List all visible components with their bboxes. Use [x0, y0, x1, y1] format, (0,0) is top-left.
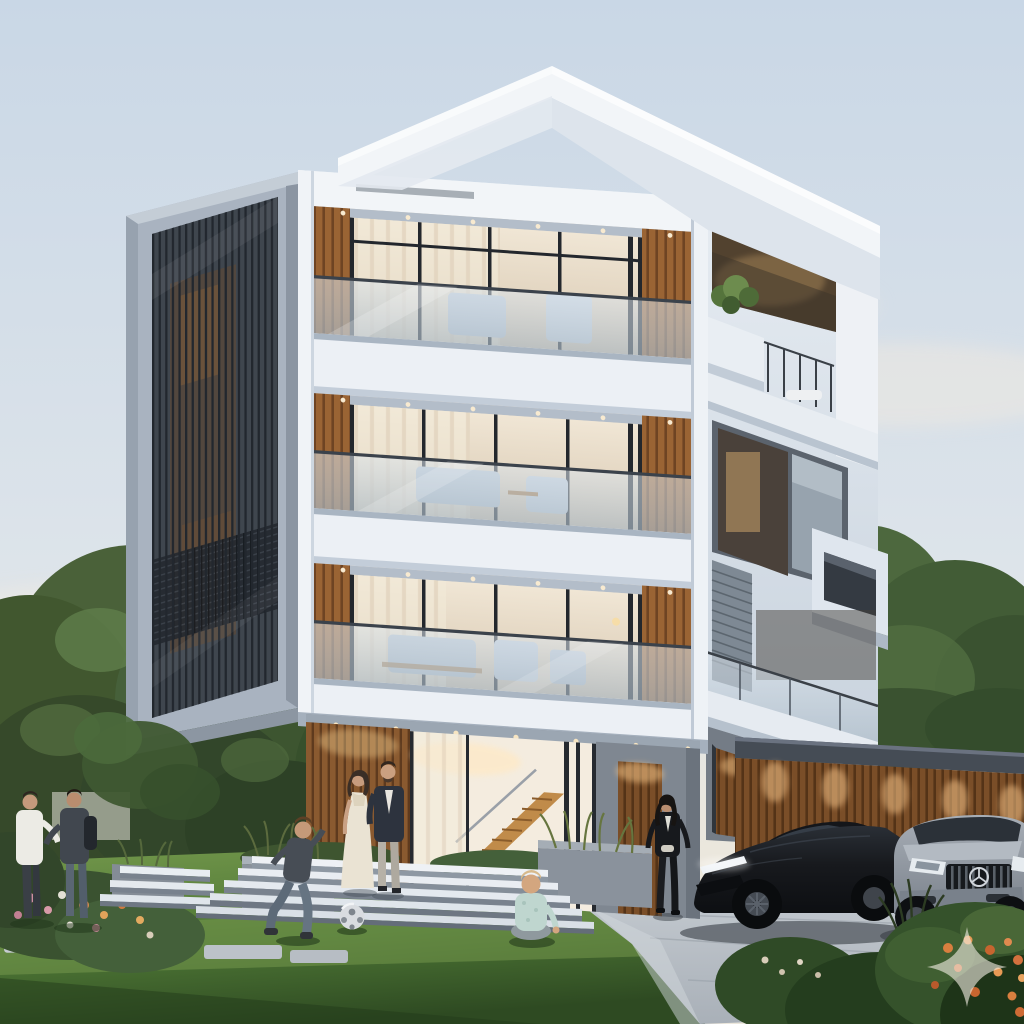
louver-screen: [152, 197, 278, 718]
front-facade: [298, 170, 708, 743]
left-pier: [298, 170, 311, 716]
backpack: [84, 816, 97, 850]
waist-bag: [661, 845, 674, 852]
balcony-floor-3: [304, 205, 702, 359]
render-canvas: [0, 0, 1024, 1024]
suv-headlight-right: [1011, 856, 1024, 872]
lounger: [786, 390, 822, 400]
left-screen-facade: [126, 172, 298, 756]
right-pier: [694, 197, 708, 743]
